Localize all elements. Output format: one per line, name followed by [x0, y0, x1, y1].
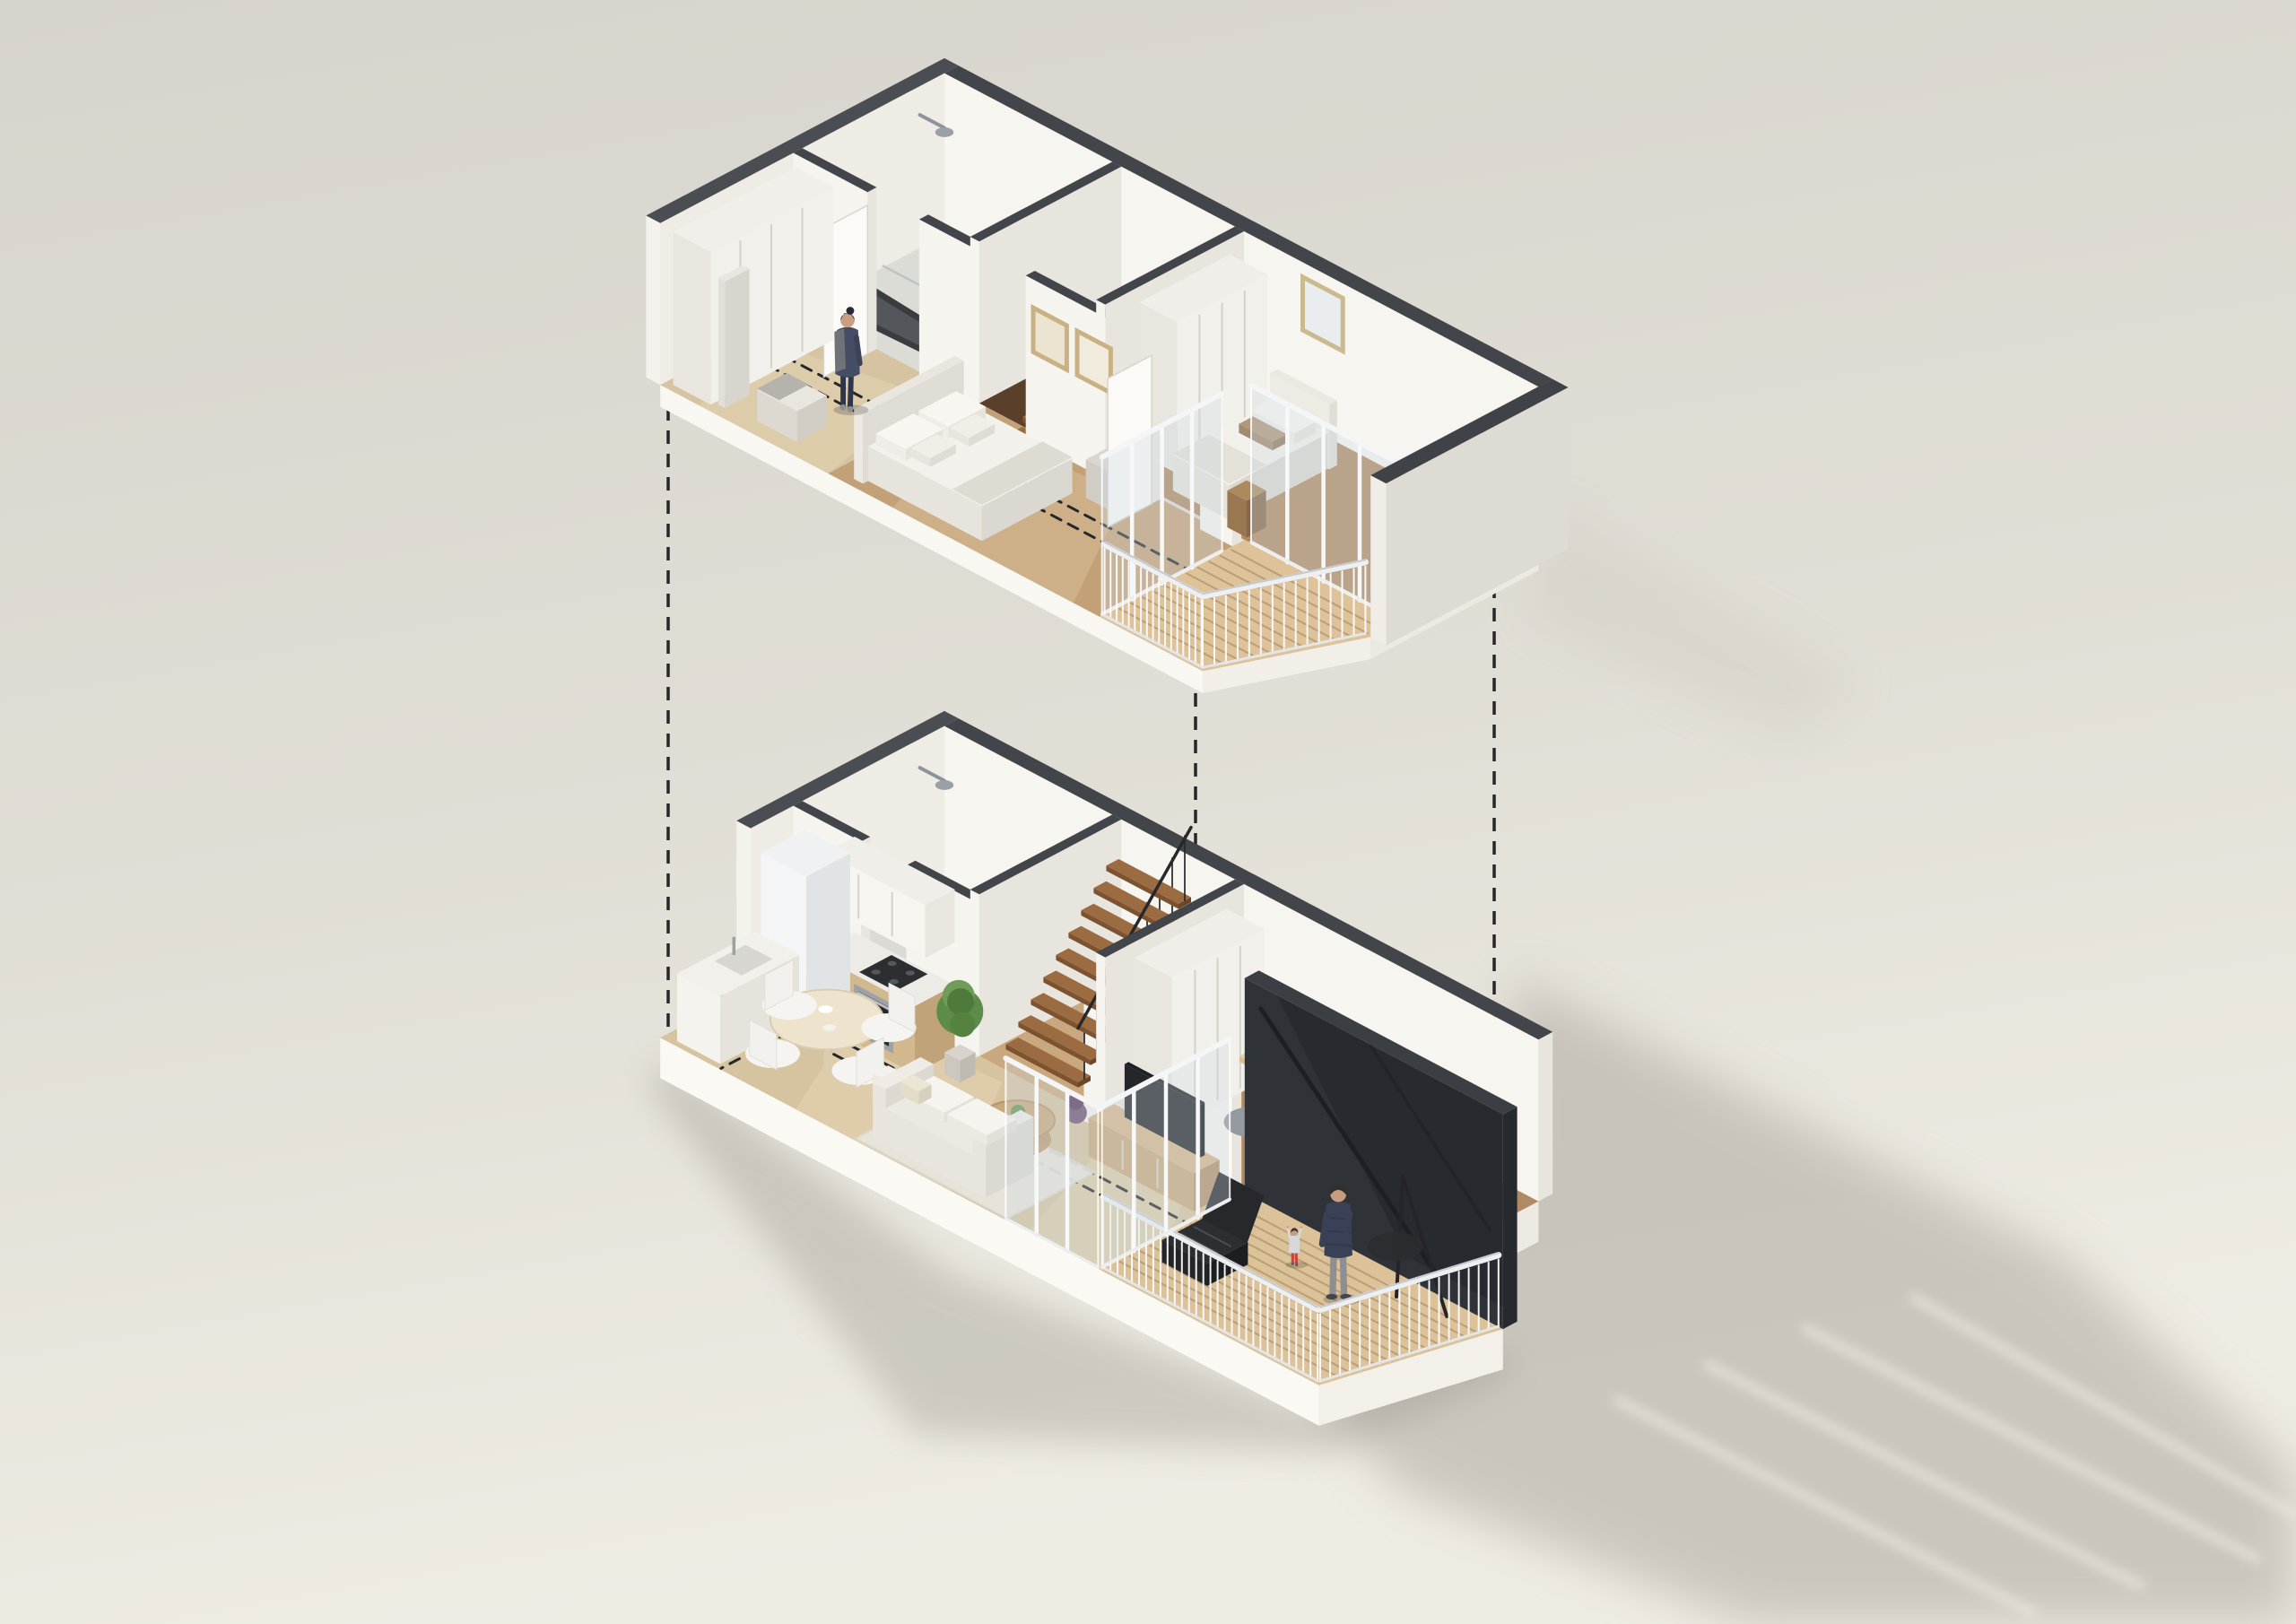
terrace-dark-wall-se — [1503, 1107, 1518, 1329]
circle — [1300, 1226, 1301, 1228]
circle — [1287, 1226, 1289, 1228]
leaning-mirror-se — [725, 269, 749, 408]
stairwell-wall-west-sw — [970, 237, 979, 404]
hammock-seat — [1368, 1232, 1422, 1261]
stair-wall-east-sw — [1096, 952, 1105, 1119]
circle — [848, 406, 854, 413]
master-headboard-sw — [854, 409, 863, 483]
partition-bath-se — [867, 187, 876, 354]
circle — [1291, 1263, 1294, 1265]
burner — [872, 969, 881, 974]
cup — [823, 1024, 836, 1031]
cup — [818, 1005, 832, 1013]
leaning-mirror-sw — [718, 278, 725, 408]
circle — [1295, 1264, 1298, 1266]
path — [857, 337, 860, 363]
burner — [888, 961, 897, 966]
shower-head — [935, 127, 953, 137]
burner — [890, 979, 899, 984]
exterior-wall-nw-sw — [646, 215, 660, 385]
path — [1296, 1252, 1297, 1264]
exterior-wall-ne-se — [1538, 1032, 1552, 1202]
path — [850, 376, 851, 407]
path — [1343, 1255, 1344, 1295]
path — [1345, 1214, 1350, 1238]
plant-foliage — [950, 1012, 975, 1037]
scene-canvas — [0, 0, 2296, 1624]
burner — [906, 970, 915, 975]
exterior-wall-se-sw — [1370, 475, 1386, 646]
path — [834, 328, 846, 372]
circle — [840, 404, 847, 411]
hall-wardrobe-row-sw — [674, 232, 711, 405]
apartment-axonometric-illustration — [0, 0, 2296, 1624]
shower-head — [935, 780, 953, 790]
ellipse — [1326, 1294, 1338, 1299]
path — [1333, 1255, 1334, 1295]
circle — [847, 307, 855, 315]
path — [1322, 1214, 1326, 1245]
plant-foliage — [947, 988, 974, 1015]
